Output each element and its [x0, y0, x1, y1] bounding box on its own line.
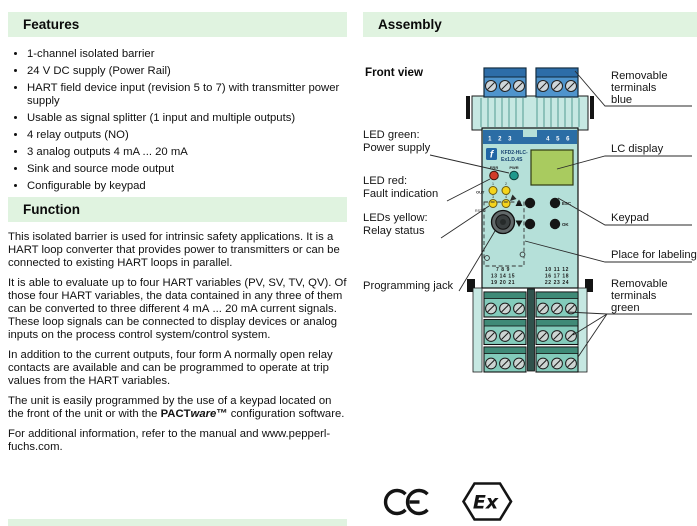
left-column: Features 1-channel isolated barrier 24 V… [8, 12, 347, 454]
ce-letter-c [386, 491, 406, 514]
terminal-rail-right [578, 288, 587, 372]
feature-item: HART field device input (revision 5 to 7… [27, 82, 347, 107]
next-section-header-edge [8, 519, 347, 526]
out-led-number: 1 [492, 182, 494, 186]
brand-pact: PACT [161, 408, 191, 420]
bottom-terminal-numbers: 7 8 9 [496, 267, 510, 273]
ok-label: OK [562, 222, 569, 227]
yellow-relay-led [489, 187, 497, 195]
brand-ware: ware [191, 408, 217, 420]
leds-yellow-label: LEDs yellow: [363, 212, 428, 224]
ex-letters: Ex [473, 492, 499, 514]
programming-jack-label: Programming jack [363, 280, 454, 292]
lc-display [531, 150, 573, 185]
led-green-label: Power supply [363, 142, 431, 154]
programming-jack[interactable] [492, 211, 515, 234]
bottom-terminal-numbers: 13 14 15 [491, 274, 515, 280]
function-paragraph: This isolated barrier is used for intrin… [8, 231, 347, 270]
assembly-figure: Front view [363, 40, 697, 526]
bottom-terminal-numbers: 16 17 18 [545, 274, 569, 280]
terminals-green-label: green [611, 302, 640, 314]
yellow-relay-led [502, 187, 510, 195]
green-terminal-block [484, 347, 526, 372]
feature-item: Configurable by keypad [27, 180, 347, 193]
terminal-screws [538, 81, 577, 92]
function-paragraph: The unit is easily programmed by the use… [8, 395, 347, 421]
green-terminal-block [536, 292, 578, 317]
model-number-line1: KFD2-HLC- [501, 150, 528, 156]
function-heading: Function [8, 197, 347, 222]
bottom-terminal-numbers: 22 23 24 [545, 280, 569, 286]
trademark-symbol: ™ [216, 408, 227, 420]
p4-text: configuration software. [228, 408, 345, 420]
green-power-led [510, 171, 519, 180]
ok-button[interactable] [550, 219, 560, 229]
front-view-label: Front view [365, 66, 424, 79]
assembly-heading: Assembly [363, 12, 697, 37]
feature-item: 24 V DC supply (Power Rail) [27, 65, 347, 78]
device-diagram: 1 2 3 4 5 6 f KFD2-HLC- Ex1.D.4S ERR PWR… [466, 68, 594, 372]
keypad-label: Keypad [611, 212, 649, 224]
terminals-green-label: Removable [611, 278, 668, 290]
feature-item: Sink and source mode output [27, 163, 347, 176]
up-button[interactable] [525, 198, 535, 208]
model-number-line2: Ex1.D.4S [501, 157, 523, 163]
feature-item: 3 analog outputs 4 mA ... 20 mA [27, 146, 347, 159]
led-red-label: LED red: [363, 175, 407, 187]
features-list: 1-channel isolated barrier 24 V DC suppl… [8, 48, 347, 193]
terminal-divider [528, 289, 535, 371]
function-paragraph: It is able to evaluate up to four HART v… [8, 277, 347, 342]
leds-yellow-label: Relay status [363, 225, 425, 237]
top-terminal-numbers-left: 1 2 3 [488, 137, 514, 143]
strip-notch [523, 130, 537, 137]
terminals-green-label: terminals [611, 290, 657, 302]
green-terminal-block [484, 320, 526, 345]
panel-hole [485, 256, 490, 261]
blue-terminal-block-left [484, 68, 526, 97]
yellow-relay-led [502, 200, 510, 208]
place-for-labeling-label: Place for labeling [611, 249, 697, 261]
terminal-screws [486, 81, 525, 92]
features-heading: Features [8, 12, 347, 37]
green-terminal-block [536, 347, 578, 372]
out-led-number: 3 [492, 195, 494, 199]
function-paragraph: In addition to the current outputs, four… [8, 349, 347, 388]
terminal-rail-left [473, 288, 482, 372]
terminals-blue-label: Removable [611, 70, 668, 82]
rail-clip-left [466, 96, 470, 119]
out-label: OUT [476, 190, 485, 195]
housing-top [472, 96, 588, 130]
blue-terminal-block-right [536, 68, 578, 97]
esc-button[interactable] [550, 198, 560, 208]
yellow-relay-led [489, 200, 497, 208]
panel-hole [520, 252, 525, 257]
lc-display-label: LC display [611, 143, 664, 155]
ex-mark: Ex [464, 484, 512, 520]
feature-item: 4 relay outputs (NO) [27, 129, 347, 142]
green-terminal-block [484, 292, 526, 317]
terminals-blue-label: blue [611, 94, 632, 106]
function-paragraph: For additional information, refer to the… [8, 428, 347, 454]
terminals-blue-label: terminals [611, 82, 657, 94]
datasheet-page: Features 1-channel isolated barrier 24 V… [0, 0, 697, 526]
led-green-label: LED green: [363, 129, 420, 141]
down-button[interactable] [525, 219, 535, 229]
red-fault-led [490, 171, 499, 180]
pwr-led-label: PWR [509, 165, 518, 170]
feature-item: 1-channel isolated barrier [27, 48, 347, 61]
bottom-terminal-numbers: 19 20 21 [491, 280, 515, 286]
led-red-label: Fault indication [363, 188, 438, 200]
bottom-terminal-numbers: 10 11 12 [545, 267, 569, 273]
out-led-number: 2 [505, 182, 507, 186]
top-terminal-numbers-right: 4 5 6 [546, 137, 572, 143]
green-terminal-block [536, 320, 578, 345]
ce-mark [386, 491, 428, 514]
feature-item: Usable as signal splitter (1 input and m… [27, 112, 347, 125]
out-led-number: 4 [505, 195, 507, 199]
rail-clip-right [590, 96, 594, 119]
